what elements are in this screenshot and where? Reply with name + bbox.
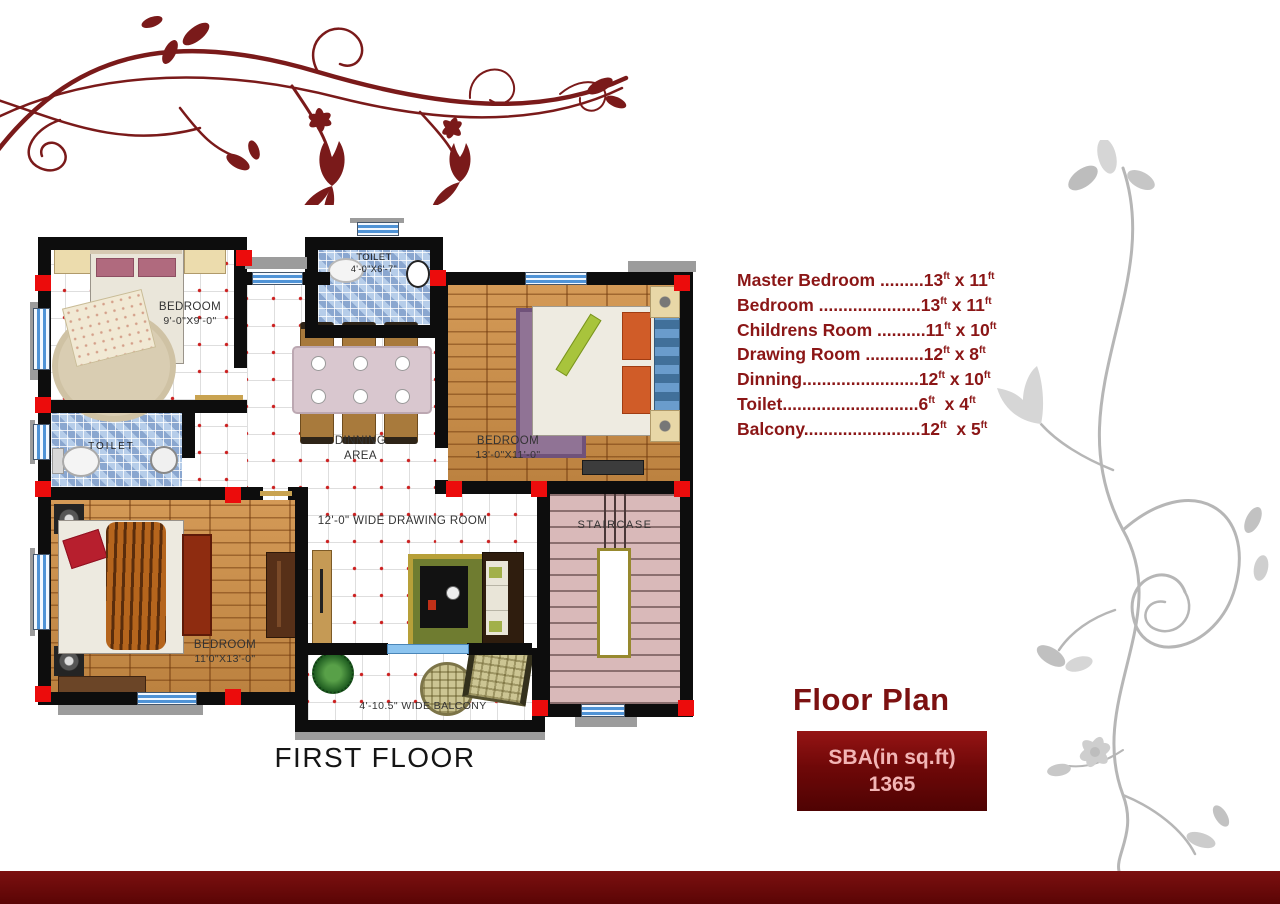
room-label-bedroom-top-left: BEDROOM 9'-0"X9'-0" xyxy=(125,300,255,329)
room-name: 12'-0" WIDE DRAWING ROOM xyxy=(295,514,510,529)
page-title: Floor Plan xyxy=(793,682,950,718)
room-height: 10 xyxy=(970,319,989,339)
corner-marker xyxy=(674,275,690,291)
wardrobe xyxy=(266,552,296,638)
staircase-void xyxy=(597,548,631,658)
room-name: TOILET xyxy=(64,440,159,453)
door-threshold xyxy=(260,491,292,496)
room-label: Master Bedroom ......... xyxy=(737,270,924,290)
cabinet xyxy=(312,550,332,644)
unit: ft xyxy=(990,321,997,332)
room-name: BEDROOM xyxy=(125,300,255,315)
plate xyxy=(353,356,368,371)
footer-bar xyxy=(0,871,1280,904)
plate xyxy=(395,356,410,371)
room-label-staircase: STAIRCASE xyxy=(542,518,688,532)
plate xyxy=(311,356,326,371)
potted-plant xyxy=(312,652,354,694)
unit: ft xyxy=(943,345,950,356)
room-label-toilet-left: TOILET xyxy=(64,440,159,453)
corner-marker xyxy=(446,481,462,497)
wall-segment xyxy=(305,237,318,338)
corner-marker xyxy=(35,275,51,291)
room-dims: 9'-0"X9'-0" xyxy=(125,315,255,329)
room-dims: 4'-0"X6'-7" xyxy=(322,264,426,276)
wall-segment xyxy=(182,400,195,458)
floral-ornament-right xyxy=(995,140,1280,871)
bedside-rug xyxy=(182,534,212,636)
sofa-pillow xyxy=(489,621,502,632)
unit: ft xyxy=(944,321,951,332)
window xyxy=(33,554,50,630)
room-label: Dinning........................ xyxy=(737,369,919,389)
plate xyxy=(311,389,326,404)
room-label: Childrens Room .......... xyxy=(737,319,926,339)
legend-row-drawing-room: Drawing Room ............12ft x 8ft xyxy=(737,340,996,365)
unit: ft xyxy=(943,271,950,282)
unit: ft xyxy=(938,370,945,381)
sba-box: SBA(in sq.ft) 1365 xyxy=(797,731,987,811)
floral-ornament-top-left xyxy=(0,0,630,205)
pillow xyxy=(622,312,651,360)
window xyxy=(137,692,197,705)
room-height: 11 xyxy=(966,295,985,315)
window xyxy=(357,222,399,236)
room-height: 4 xyxy=(959,394,969,414)
unit: ft xyxy=(940,296,947,307)
unit: ft xyxy=(985,296,992,307)
unit: ft xyxy=(969,395,976,406)
room-name: BEDROOM xyxy=(438,434,578,449)
room-dimension-list: Master Bedroom .........13ft x 11ft Bedr… xyxy=(737,266,996,440)
corner-marker xyxy=(236,250,252,266)
pillow xyxy=(138,258,176,277)
sofa-pillow xyxy=(489,567,502,578)
cabinet-handle xyxy=(320,569,323,613)
tv-console xyxy=(582,460,644,475)
corner-marker xyxy=(225,689,241,705)
wall-segment xyxy=(305,237,443,250)
unit: ft xyxy=(981,420,988,431)
separator: x xyxy=(945,369,964,389)
separator: x xyxy=(947,295,966,315)
room-width: 13 xyxy=(924,270,943,290)
corner-marker xyxy=(35,481,51,497)
room-width: 12 xyxy=(920,419,939,439)
plan-caption: FIRST FLOOR xyxy=(230,742,520,774)
separator: x xyxy=(951,319,970,339)
room-label-dinning-area: DINNING AREA xyxy=(313,434,408,464)
door-threshold xyxy=(195,395,243,400)
window xyxy=(525,272,587,285)
corner-marker xyxy=(430,270,446,286)
room-width: 13 xyxy=(921,295,940,315)
wall-segment xyxy=(305,325,443,338)
legend-row-master-bedroom: Master Bedroom .........13ft x 11ft xyxy=(737,266,996,291)
legend-row-balcony: Balcony........................12ft x 5f… xyxy=(737,415,996,440)
room-label-balcony: 4'-10.5" WIDE BALCONY xyxy=(328,700,518,714)
room-label-bedroom-right: BEDROOM 13'-0"X11'-0" xyxy=(438,434,578,463)
separator: x xyxy=(935,394,959,414)
wall-segment xyxy=(680,272,693,494)
room-name: DINNING xyxy=(313,434,408,449)
wall-segment xyxy=(38,400,247,413)
pillow xyxy=(622,366,651,414)
room-width: 12 xyxy=(924,344,943,364)
room-label: Balcony........................ xyxy=(737,419,920,439)
window xyxy=(581,704,625,717)
sba-label: SBA(in sq.ft) xyxy=(797,744,987,771)
sba-value: 1365 xyxy=(797,771,987,798)
pillow xyxy=(96,258,134,277)
nightstand-speaker xyxy=(650,410,680,442)
corner-marker xyxy=(678,700,694,716)
unit: ft xyxy=(979,345,986,356)
corner-marker xyxy=(225,487,241,503)
corner-marker xyxy=(674,481,690,497)
fur-blanket xyxy=(106,522,166,650)
room-label-toilet-top: TOILET 4'-0"X6'-7" xyxy=(322,252,426,276)
wall-segment xyxy=(467,643,532,655)
wall-segment xyxy=(532,648,545,732)
room-name: STAIRCASE xyxy=(542,518,688,532)
sill xyxy=(58,705,203,715)
wardrobe-line xyxy=(277,561,281,627)
legend-row-toilet: Toilet............................6ft x … xyxy=(737,390,996,415)
separator: x xyxy=(947,419,971,439)
sill xyxy=(295,732,545,740)
room-height: 8 xyxy=(969,344,979,364)
decor-item xyxy=(428,600,436,610)
sill xyxy=(628,261,696,272)
room-height: 10 xyxy=(964,369,983,389)
unit: ft xyxy=(988,271,995,282)
window xyxy=(252,272,303,285)
legend-row-dinning: Dinning........................12ft x 10… xyxy=(737,365,996,390)
coffee-table xyxy=(420,566,468,628)
corner-marker xyxy=(532,700,548,716)
unit: ft xyxy=(984,370,991,381)
room-name: 4'-10.5" WIDE BALCONY xyxy=(328,700,518,714)
sill xyxy=(575,717,637,727)
room-dims: 13'-0"X11'-0" xyxy=(438,449,578,463)
separator: x xyxy=(950,344,969,364)
plate xyxy=(395,389,410,404)
separator: x xyxy=(950,270,969,290)
room-label-bedroom-bottom: BEDROOM 11'0"X13'-0" xyxy=(155,638,295,667)
wall-segment xyxy=(38,237,247,250)
corner-marker xyxy=(531,481,547,497)
room-width: 6 xyxy=(919,394,929,414)
room-label: Bedroom ..................... xyxy=(737,295,921,315)
sliding-door xyxy=(387,644,469,654)
corner-marker xyxy=(35,686,51,702)
corner-marker xyxy=(35,397,51,413)
wall-segment xyxy=(435,272,448,448)
sofa xyxy=(482,552,524,646)
room-label-drawing-room: 12'-0" WIDE DRAWING ROOM xyxy=(295,514,510,529)
wall-segment xyxy=(295,720,545,732)
wall-segment xyxy=(308,643,388,655)
room-height: 5 xyxy=(971,419,981,439)
room-name: TOILET xyxy=(322,252,426,264)
plate xyxy=(353,389,368,404)
unit: ft xyxy=(928,395,935,406)
room-height: 11 xyxy=(969,270,988,290)
room-dims: 11'0"X13'-0" xyxy=(155,653,295,667)
legend-row-childrens-room: Childrens Room ..........11ft x 10ft xyxy=(737,316,996,341)
room-label: Drawing Room ............ xyxy=(737,344,924,364)
room-width: 12 xyxy=(919,369,938,389)
window xyxy=(33,424,50,460)
room-name: AREA xyxy=(313,449,408,464)
sill xyxy=(245,257,307,269)
window xyxy=(33,308,50,370)
room-width: 11 xyxy=(926,319,945,339)
legend-row-bedroom: Bedroom .....................13ft x 11ft xyxy=(737,291,996,316)
cup xyxy=(446,586,460,600)
unit: ft xyxy=(940,420,947,431)
floor-plan: BEDROOM 9'-0"X9'-0" TOILET 4'-0"X6'-7" B… xyxy=(30,218,700,793)
room-name: BEDROOM xyxy=(155,638,295,653)
wall-segment xyxy=(435,481,693,494)
room-label: Toilet............................ xyxy=(737,394,919,414)
